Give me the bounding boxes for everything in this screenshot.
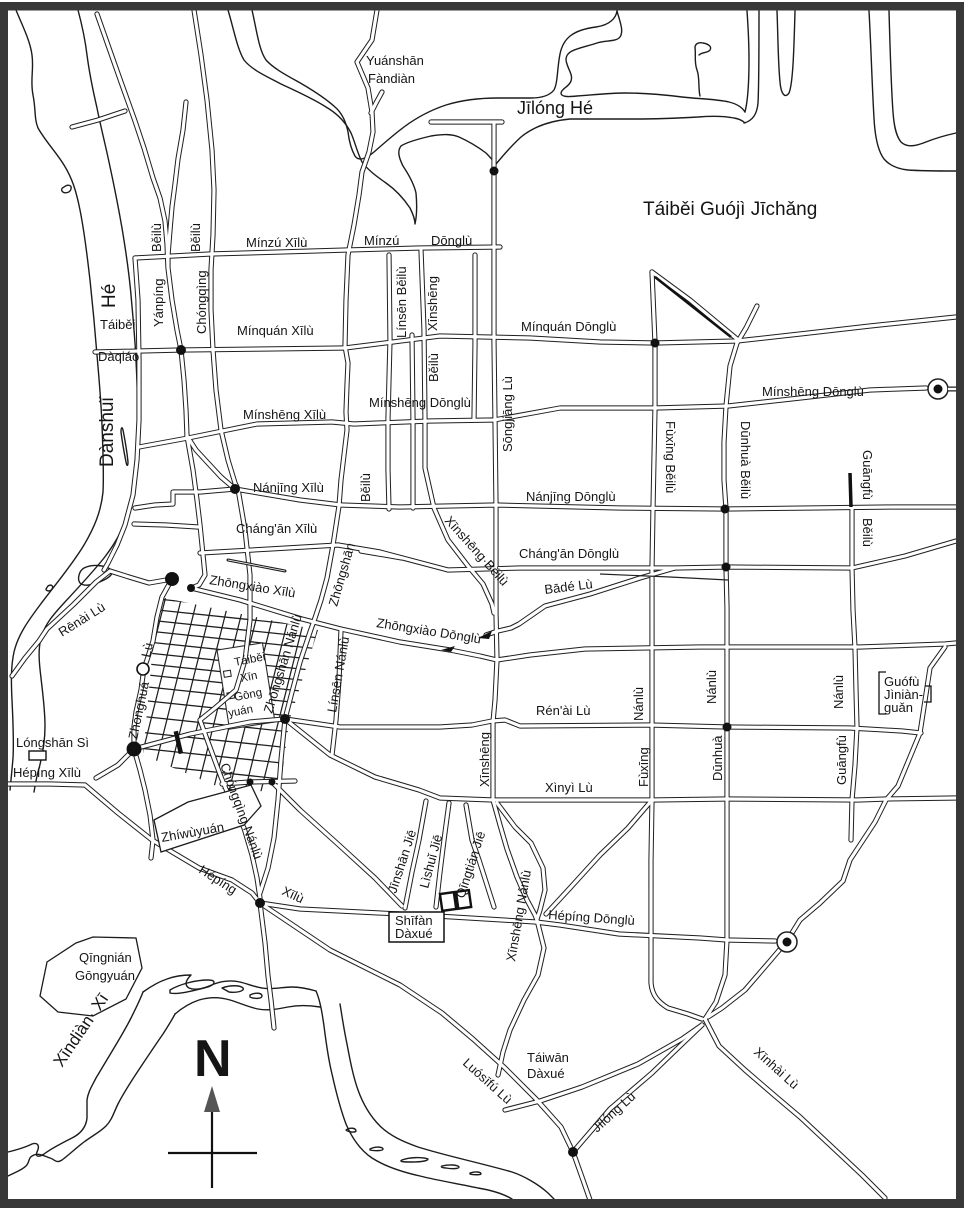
svg-text:Běilù: Běilù [188, 223, 203, 252]
svg-text:Cháng'ān Dōnglù: Cháng'ān Dōnglù [519, 546, 619, 561]
svg-text:Nánlù: Nánlù [631, 687, 646, 721]
svg-text:Xīnshēng: Xīnshēng [477, 732, 492, 787]
svg-text:Xīnshēng: Xīnshēng [425, 276, 440, 331]
svg-text:Dūnhuà Běilù: Dūnhuà Běilù [738, 421, 753, 499]
svg-text:Nánlù: Nánlù [704, 670, 719, 704]
svg-text:Běilù: Běilù [860, 518, 875, 547]
svg-text:Fàndiàn: Fàndiàn [368, 71, 415, 86]
svg-text:Mínquán Dōnglù: Mínquán Dōnglù [521, 319, 616, 334]
svg-text:Línsēn Běilù: Línsēn Běilù [394, 266, 409, 338]
svg-text:Nánlù: Nánlù [831, 675, 846, 709]
svg-text:Mínquán Xīlù: Mínquán Xīlù [237, 323, 314, 338]
svg-text:Táiběi: Táiběi [100, 317, 136, 332]
svg-text:Běilù: Běilù [426, 353, 441, 382]
svg-text:Táiběi Guójì Jīchǎng: Táiběi Guójì Jīchǎng [643, 199, 817, 220]
svg-text:Rén'ài Lù: Rén'ài Lù [536, 703, 591, 718]
svg-text:Mínshēng Xīlù: Mínshēng Xīlù [243, 407, 326, 422]
svg-text:Yuánshān: Yuánshān [366, 53, 424, 68]
svg-text:Hépíng Xīlù: Hépíng Xīlù [13, 765, 81, 780]
svg-text:Fùxīng Běilù: Fùxīng Běilù [663, 421, 678, 493]
svg-text:Dūnhuà: Dūnhuà [710, 735, 725, 781]
svg-text:Táiwān: Táiwān [527, 1050, 569, 1065]
svg-text:Dànshuǐ: Dànshuǐ [97, 396, 118, 467]
svg-text:Dōnglù: Dōnglù [431, 233, 472, 248]
svg-text:Dàxué: Dàxué [395, 926, 433, 941]
svg-text:Fùxīng: Fùxīng [636, 747, 651, 787]
svg-text:Mínshēng Dōnglù: Mínshēng Dōnglù [762, 384, 864, 399]
svg-text:N: N [194, 1030, 232, 1088]
svg-text:Mínzú Xīlù: Mínzú Xīlù [246, 235, 307, 250]
svg-text:Hé: Hé [99, 284, 120, 308]
svg-text:Sōngjiāng Lù: Sōngjiāng Lù [500, 376, 515, 452]
svg-text:Chóngqìng: Chóngqìng [194, 270, 209, 334]
svg-text:Lù: Lù [138, 641, 156, 658]
svg-text:Yánpíng: Yánpíng [151, 279, 166, 327]
svg-text:Lóngshān Sì: Lóngshān Sì [16, 735, 89, 750]
svg-text:Gōngyuán: Gōngyuán [75, 968, 135, 983]
svg-text:guǎn: guǎn [884, 700, 913, 715]
svg-text:Cháng'ān Xīlù: Cháng'ān Xīlù [236, 521, 317, 536]
svg-text:Guāngfù: Guāngfù [834, 735, 849, 785]
svg-text:Nánjīng Xīlù: Nánjīng Xīlù [253, 480, 324, 495]
svg-text:Běilù: Běilù [149, 223, 164, 252]
svg-text:Mínzú: Mínzú [364, 233, 399, 248]
svg-text:Nánjīng Dōnglù: Nánjīng Dōnglù [526, 489, 616, 504]
svg-text:Dàxué: Dàxué [527, 1066, 565, 1081]
svg-text:Qīngnián: Qīngnián [79, 950, 132, 965]
svg-text:Mínshēng Dōnglù: Mínshēng Dōnglù [369, 395, 471, 410]
svg-text:Jīlóng Hé: Jīlóng Hé [517, 98, 593, 118]
svg-text:Xìnyì Lù: Xìnyì Lù [545, 780, 593, 795]
svg-text:Dàqiáo: Dàqiáo [98, 349, 139, 364]
svg-text:Běilù: Běilù [358, 473, 373, 502]
svg-text:Guāngfù: Guāngfù [860, 450, 875, 500]
